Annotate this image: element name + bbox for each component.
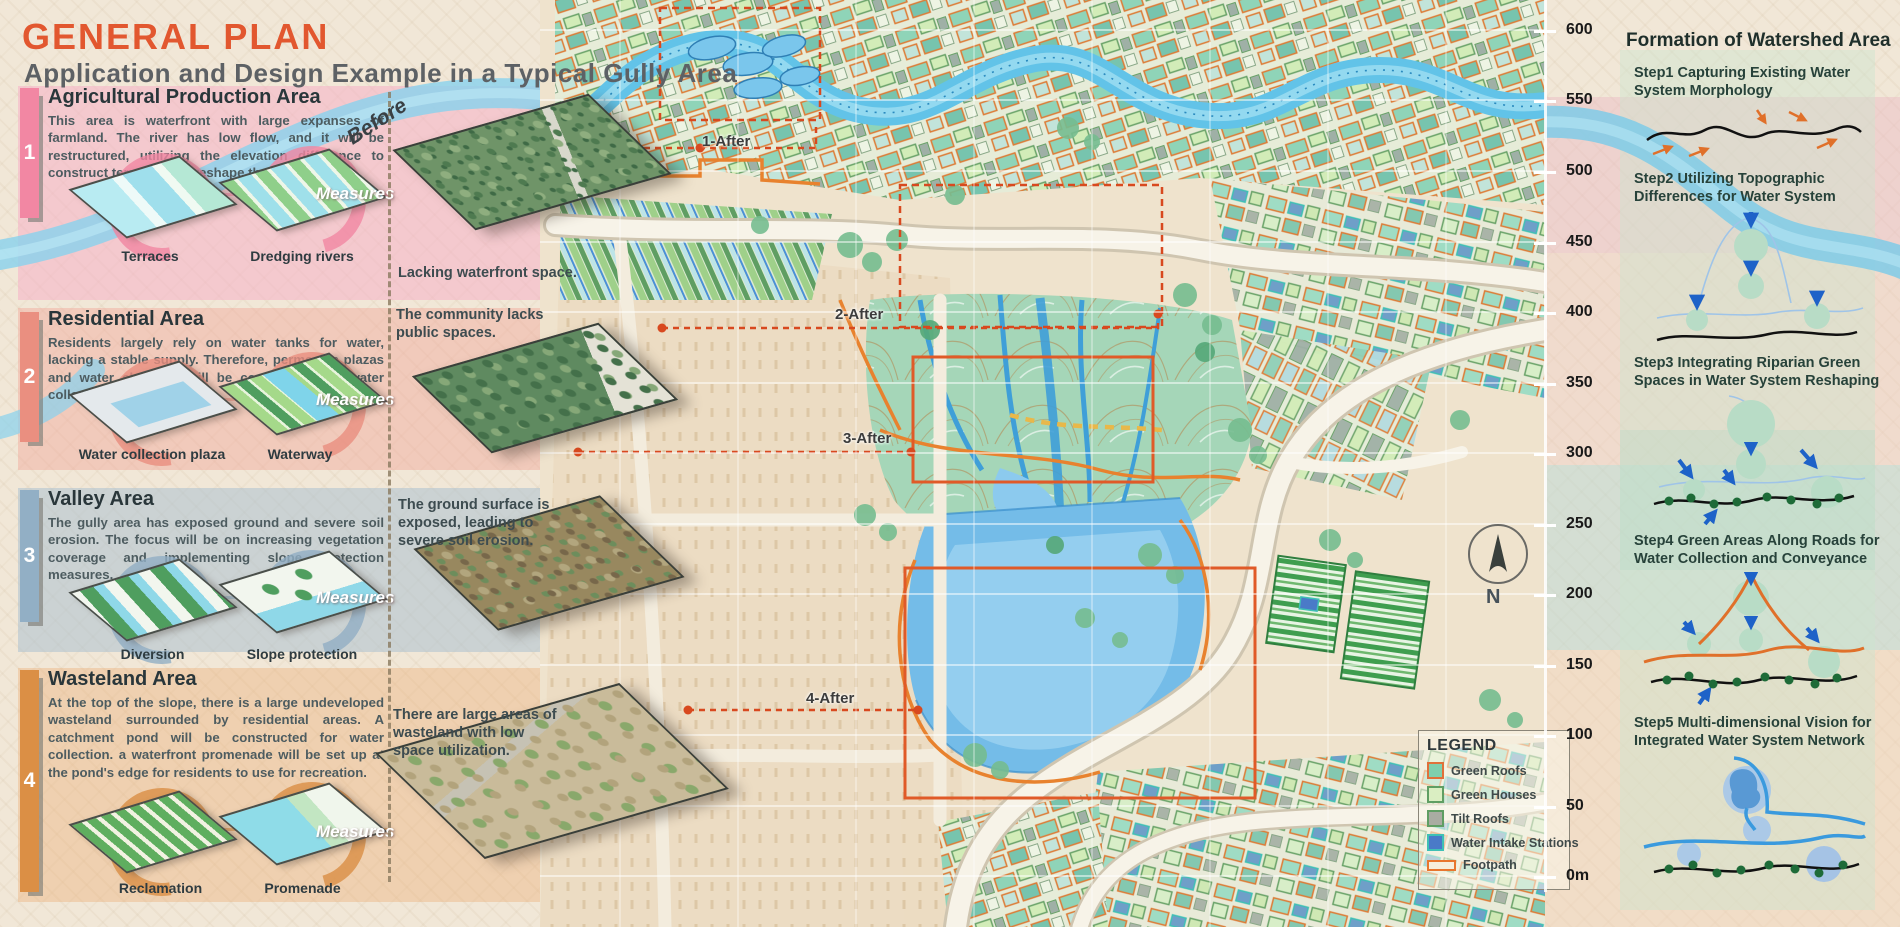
tick	[1534, 453, 1556, 456]
section4-description: At the top of the slope, there is a larg…	[48, 694, 384, 781]
section1-measure1-label: Terraces	[90, 248, 210, 264]
tick	[1534, 171, 1556, 174]
after-label-1: 1-After	[702, 133, 750, 150]
watershed-step4-label: Step4 Green Areas Along Roads for Water …	[1634, 532, 1886, 568]
tick-label-350: 350	[1566, 374, 1593, 392]
tick-label-500: 500	[1566, 162, 1593, 180]
after-label-2: 2-After	[835, 306, 883, 323]
section3-measure2-label: Slope protection	[232, 646, 372, 662]
section4-measure1-label: Reclamation	[98, 880, 223, 896]
tick	[1534, 383, 1556, 386]
poster: { "header": { "title": "GENERAL PLAN", "…	[0, 0, 1900, 927]
tick-label-100: 100	[1566, 726, 1593, 744]
section3-measure1-label: Diversion	[95, 646, 210, 662]
legend-label: Footpath	[1463, 858, 1517, 872]
before-caption-3: The ground surface is exposed, leading t…	[398, 496, 556, 550]
legend-title: LEGEND	[1427, 737, 1561, 755]
watershed-step2-diagram	[1634, 208, 1874, 353]
legend-label: Tilt Roofs	[1451, 812, 1509, 826]
green-roofs-swatch	[1427, 762, 1444, 779]
before-caption-1: Lacking waterfront space.	[398, 264, 618, 282]
section2-measure1-label: Water collection plaza	[72, 446, 232, 462]
section1-measure2-label: Dredging rivers	[232, 248, 372, 264]
map-legend: LEGEND Green Roofs Green Houses Tilt Roo…	[1418, 730, 1570, 890]
section3-number-tab: 3	[20, 490, 39, 622]
tick-label-150: 150	[1566, 656, 1593, 674]
watershed-step5-label: Step5 Multi-dimensional Vision for Integ…	[1634, 714, 1886, 750]
watershed-step2-label: Step2 Utilizing Topographic Differences …	[1634, 170, 1886, 206]
legend-label: Water Intake Stations	[1451, 836, 1579, 850]
section1-measures-label: Measures	[316, 184, 394, 204]
section3-title: Valley Area	[48, 488, 154, 511]
section2-number: 2	[24, 365, 36, 389]
section4-measures-label: Measures	[316, 822, 394, 842]
tick-label-400: 400	[1566, 303, 1593, 321]
tick	[1534, 524, 1556, 527]
footpath-swatch	[1427, 860, 1456, 871]
legend-label: Green Roofs	[1451, 764, 1527, 778]
tick	[1534, 594, 1556, 597]
watershed-step5-diagram	[1634, 752, 1874, 902]
tick	[1534, 30, 1556, 33]
section2-measure2-label: Waterway	[240, 446, 360, 462]
section1-number-tab: 1	[20, 88, 39, 218]
after-label-3: 3-After	[843, 430, 891, 447]
section1-number: 1	[24, 141, 36, 165]
tick	[1534, 806, 1556, 809]
tick-label-50: 50	[1566, 797, 1584, 815]
tick	[1534, 100, 1556, 103]
water-intake-swatch	[1427, 834, 1444, 851]
tick-label-450: 450	[1566, 233, 1593, 251]
watershed-step3-diagram	[1634, 392, 1874, 530]
tick-label-0m: 0m	[1566, 867, 1589, 885]
tilt-roofs-swatch	[1427, 810, 1444, 827]
after-label-4: 4-After	[806, 690, 854, 707]
tick	[1534, 242, 1556, 245]
watershed-step4-diagram	[1634, 570, 1874, 710]
tick	[1534, 312, 1556, 315]
section4-measure2-label: Promenade	[240, 880, 365, 896]
legend-item-water-intake: Water Intake Stations	[1427, 834, 1561, 851]
elevation-scale-line	[1544, 0, 1547, 892]
watershed-step1-label: Step1 Capturing Existing Water System Mo…	[1634, 64, 1886, 100]
section3-measures-label: Measures	[316, 588, 394, 608]
legend-item-green-roofs: Green Roofs	[1427, 762, 1561, 779]
tick	[1534, 665, 1556, 668]
poster-title: GENERAL PLAN	[22, 16, 329, 58]
tick-label-600: 600	[1566, 21, 1593, 39]
section2-measures-label: Measures	[316, 390, 394, 410]
section4-title: Wasteland Area	[48, 668, 197, 691]
tick	[1534, 876, 1556, 879]
section2-number-tab: 2	[20, 312, 39, 442]
section4-number: 4	[24, 769, 36, 793]
watershed-step3-label: Step3 Integrating Riparian Green Spaces …	[1634, 354, 1886, 390]
section3-number: 3	[24, 544, 36, 568]
legend-item-green-houses: Green Houses	[1427, 786, 1561, 803]
legend-item-tilt-roofs: Tilt Roofs	[1427, 810, 1561, 827]
section2-title: Residential Area	[48, 308, 204, 331]
legend-label: Green Houses	[1451, 788, 1536, 802]
green-houses-swatch	[1427, 786, 1444, 803]
section4-number-tab: 4	[20, 670, 39, 892]
tick	[1534, 735, 1556, 738]
section1-title: Agricultural Production Area	[48, 86, 321, 109]
before-caption-2: The community lacks public spaces.	[396, 306, 546, 342]
north-arrow-icon	[1485, 534, 1511, 574]
tick-label-550: 550	[1566, 91, 1593, 109]
watershed-title: Formation of Watershed Area	[1626, 30, 1898, 52]
poster-subtitle: Application and Design Example in a Typi…	[24, 58, 737, 89]
compass-icon	[1468, 524, 1528, 584]
tick-label-200: 200	[1566, 585, 1593, 603]
legend-item-footpath: Footpath	[1427, 858, 1561, 872]
tick-label-300: 300	[1566, 444, 1593, 462]
before-caption-4: There are large areas of wasteland with …	[393, 706, 561, 760]
watershed-step1-diagram	[1634, 102, 1874, 164]
tick-label-250: 250	[1566, 515, 1593, 533]
compass-north-label: N	[1486, 586, 1500, 609]
